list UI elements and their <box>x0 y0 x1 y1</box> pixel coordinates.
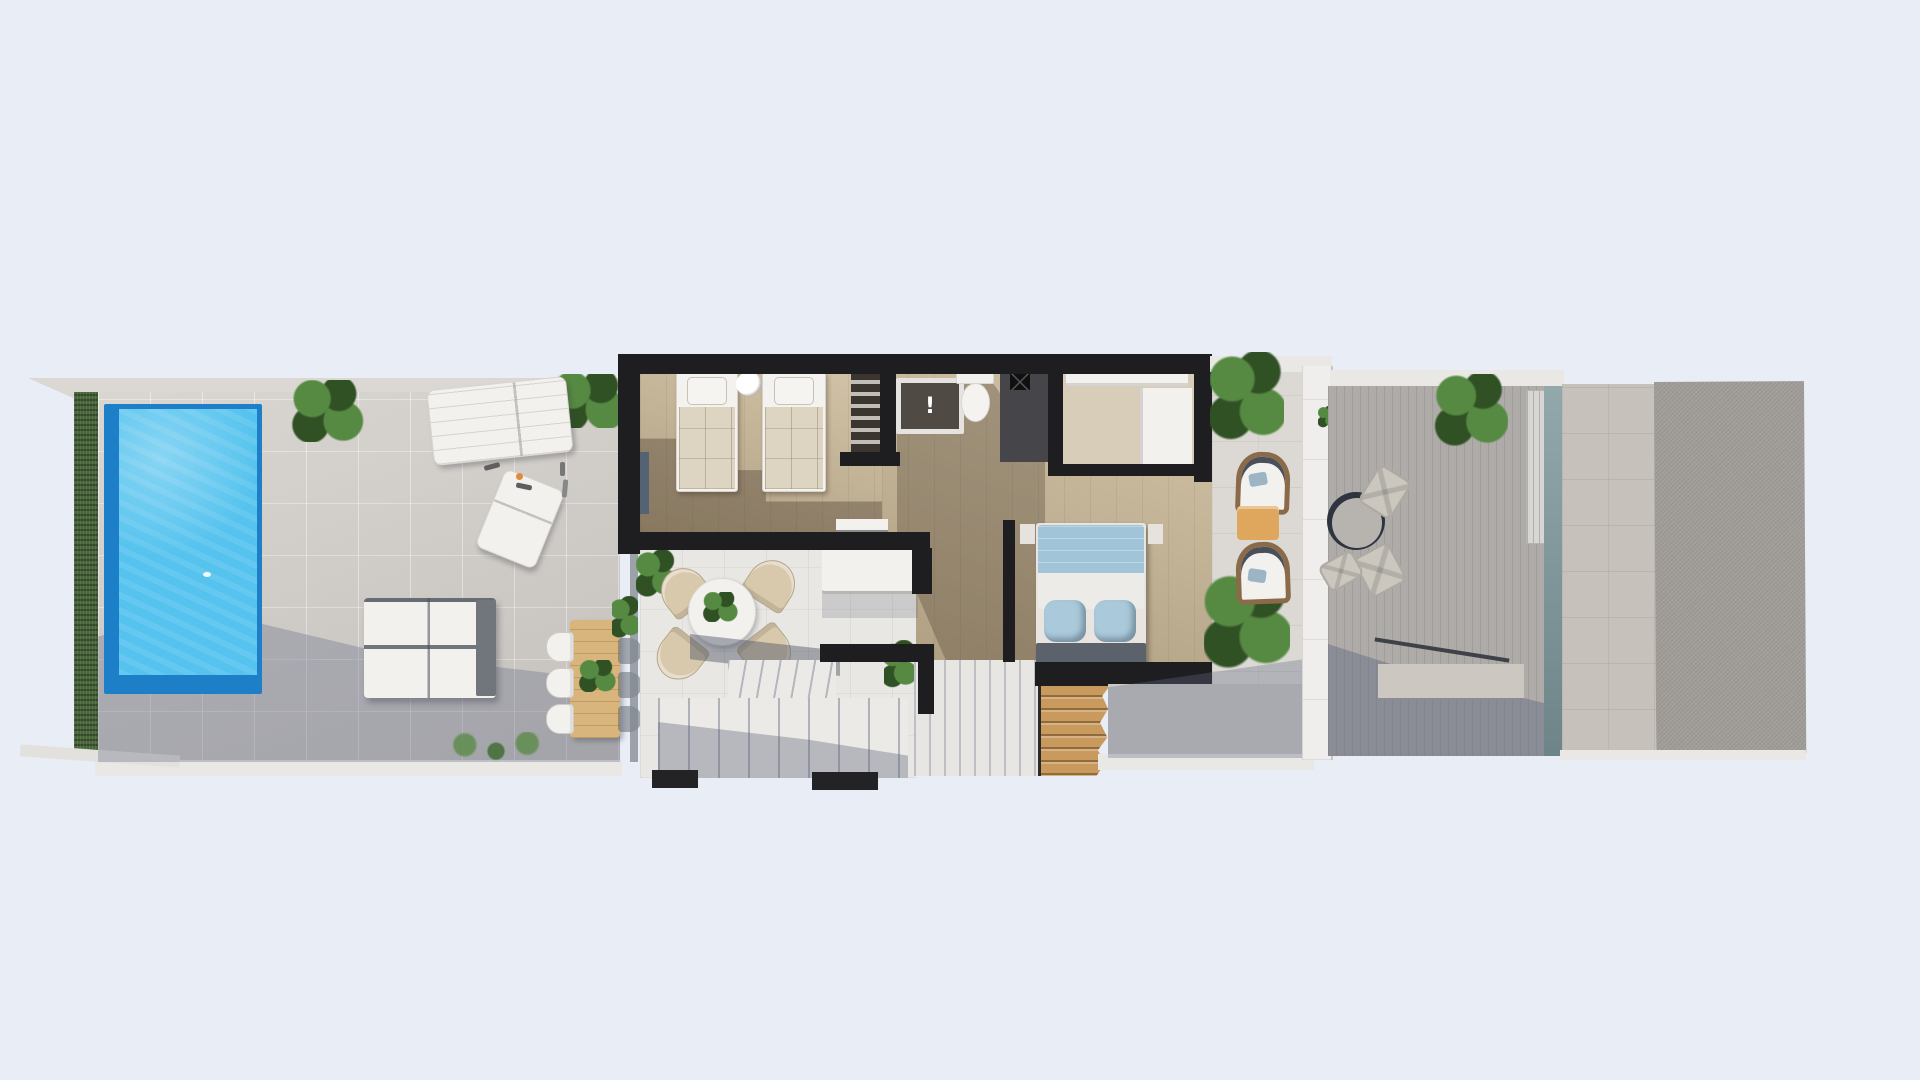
pool-water <box>119 409 257 675</box>
planter-box <box>444 732 548 764</box>
outdoor-chair <box>546 632 574 662</box>
water-sparkle <box>203 572 211 577</box>
wall-segment <box>912 548 932 594</box>
wardrobe-unit <box>1140 388 1192 464</box>
kitchen-island <box>822 550 918 594</box>
swimming-pool <box>104 404 262 694</box>
island-shadow <box>822 594 918 618</box>
roof-volume <box>1654 381 1806 754</box>
far-bottom-edge <box>1560 750 1806 760</box>
stairs-main-flight <box>658 698 908 778</box>
chair-cushion <box>1248 471 1268 487</box>
bedside-lamp <box>736 372 762 396</box>
deck-bench <box>1378 664 1524 698</box>
garden-hedge <box>74 392 98 756</box>
toilet-bowl <box>961 383 990 422</box>
washbasin: ! <box>896 378 964 434</box>
deck-plant <box>1434 374 1508 446</box>
wall-segment <box>1003 520 1015 662</box>
stone-walkway <box>1562 384 1656 756</box>
wall-segment <box>918 644 934 714</box>
nightstand <box>1148 524 1163 544</box>
bed-duvet <box>765 407 823 489</box>
indoor-plant <box>612 596 638 640</box>
nightstand <box>1020 524 1035 544</box>
table-centerpiece-plant <box>578 660 616 692</box>
wall-segment <box>880 354 896 464</box>
outdoor-chair <box>546 668 574 698</box>
wall-segment <box>820 644 934 662</box>
bed-pillow-blue <box>1044 600 1086 642</box>
stairs-shadow-overlay <box>658 698 908 778</box>
ceiling-fan-icon <box>1010 374 1030 390</box>
balcony-plant <box>1210 352 1284 442</box>
scattered-item <box>560 462 565 476</box>
bed-pillow-blue <box>1094 600 1136 642</box>
bed-pillow <box>774 377 814 405</box>
wall-segment <box>1048 464 1196 476</box>
table-centerpiece-plant <box>702 592 738 622</box>
twin-bed <box>762 372 826 492</box>
bed-pillow <box>687 377 727 405</box>
scattered-item-orange <box>516 473 523 480</box>
wall-segment <box>618 354 1212 374</box>
sun-lounger <box>426 376 573 466</box>
potted-plant <box>290 380 364 442</box>
floorplan-render: ! <box>0 0 1920 1080</box>
sofa-backrest <box>476 600 496 696</box>
wall-segment <box>618 354 640 554</box>
chair-cushion <box>1247 568 1267 583</box>
wall-segment <box>618 532 930 550</box>
kitchen-counter <box>836 519 888 532</box>
wall-segment <box>840 452 900 466</box>
sink-mark: ! <box>925 394 935 419</box>
entry-threshold <box>652 770 698 788</box>
entry-threshold <box>812 772 878 790</box>
bed-duvet <box>679 407 735 489</box>
outdoor-chair <box>546 704 574 734</box>
twin-bed <box>676 372 738 492</box>
lounge-chair <box>1235 541 1291 605</box>
bed-duvet-blue <box>1038 525 1144 575</box>
wall-segment <box>1048 354 1063 472</box>
side-table <box>1237 506 1279 540</box>
